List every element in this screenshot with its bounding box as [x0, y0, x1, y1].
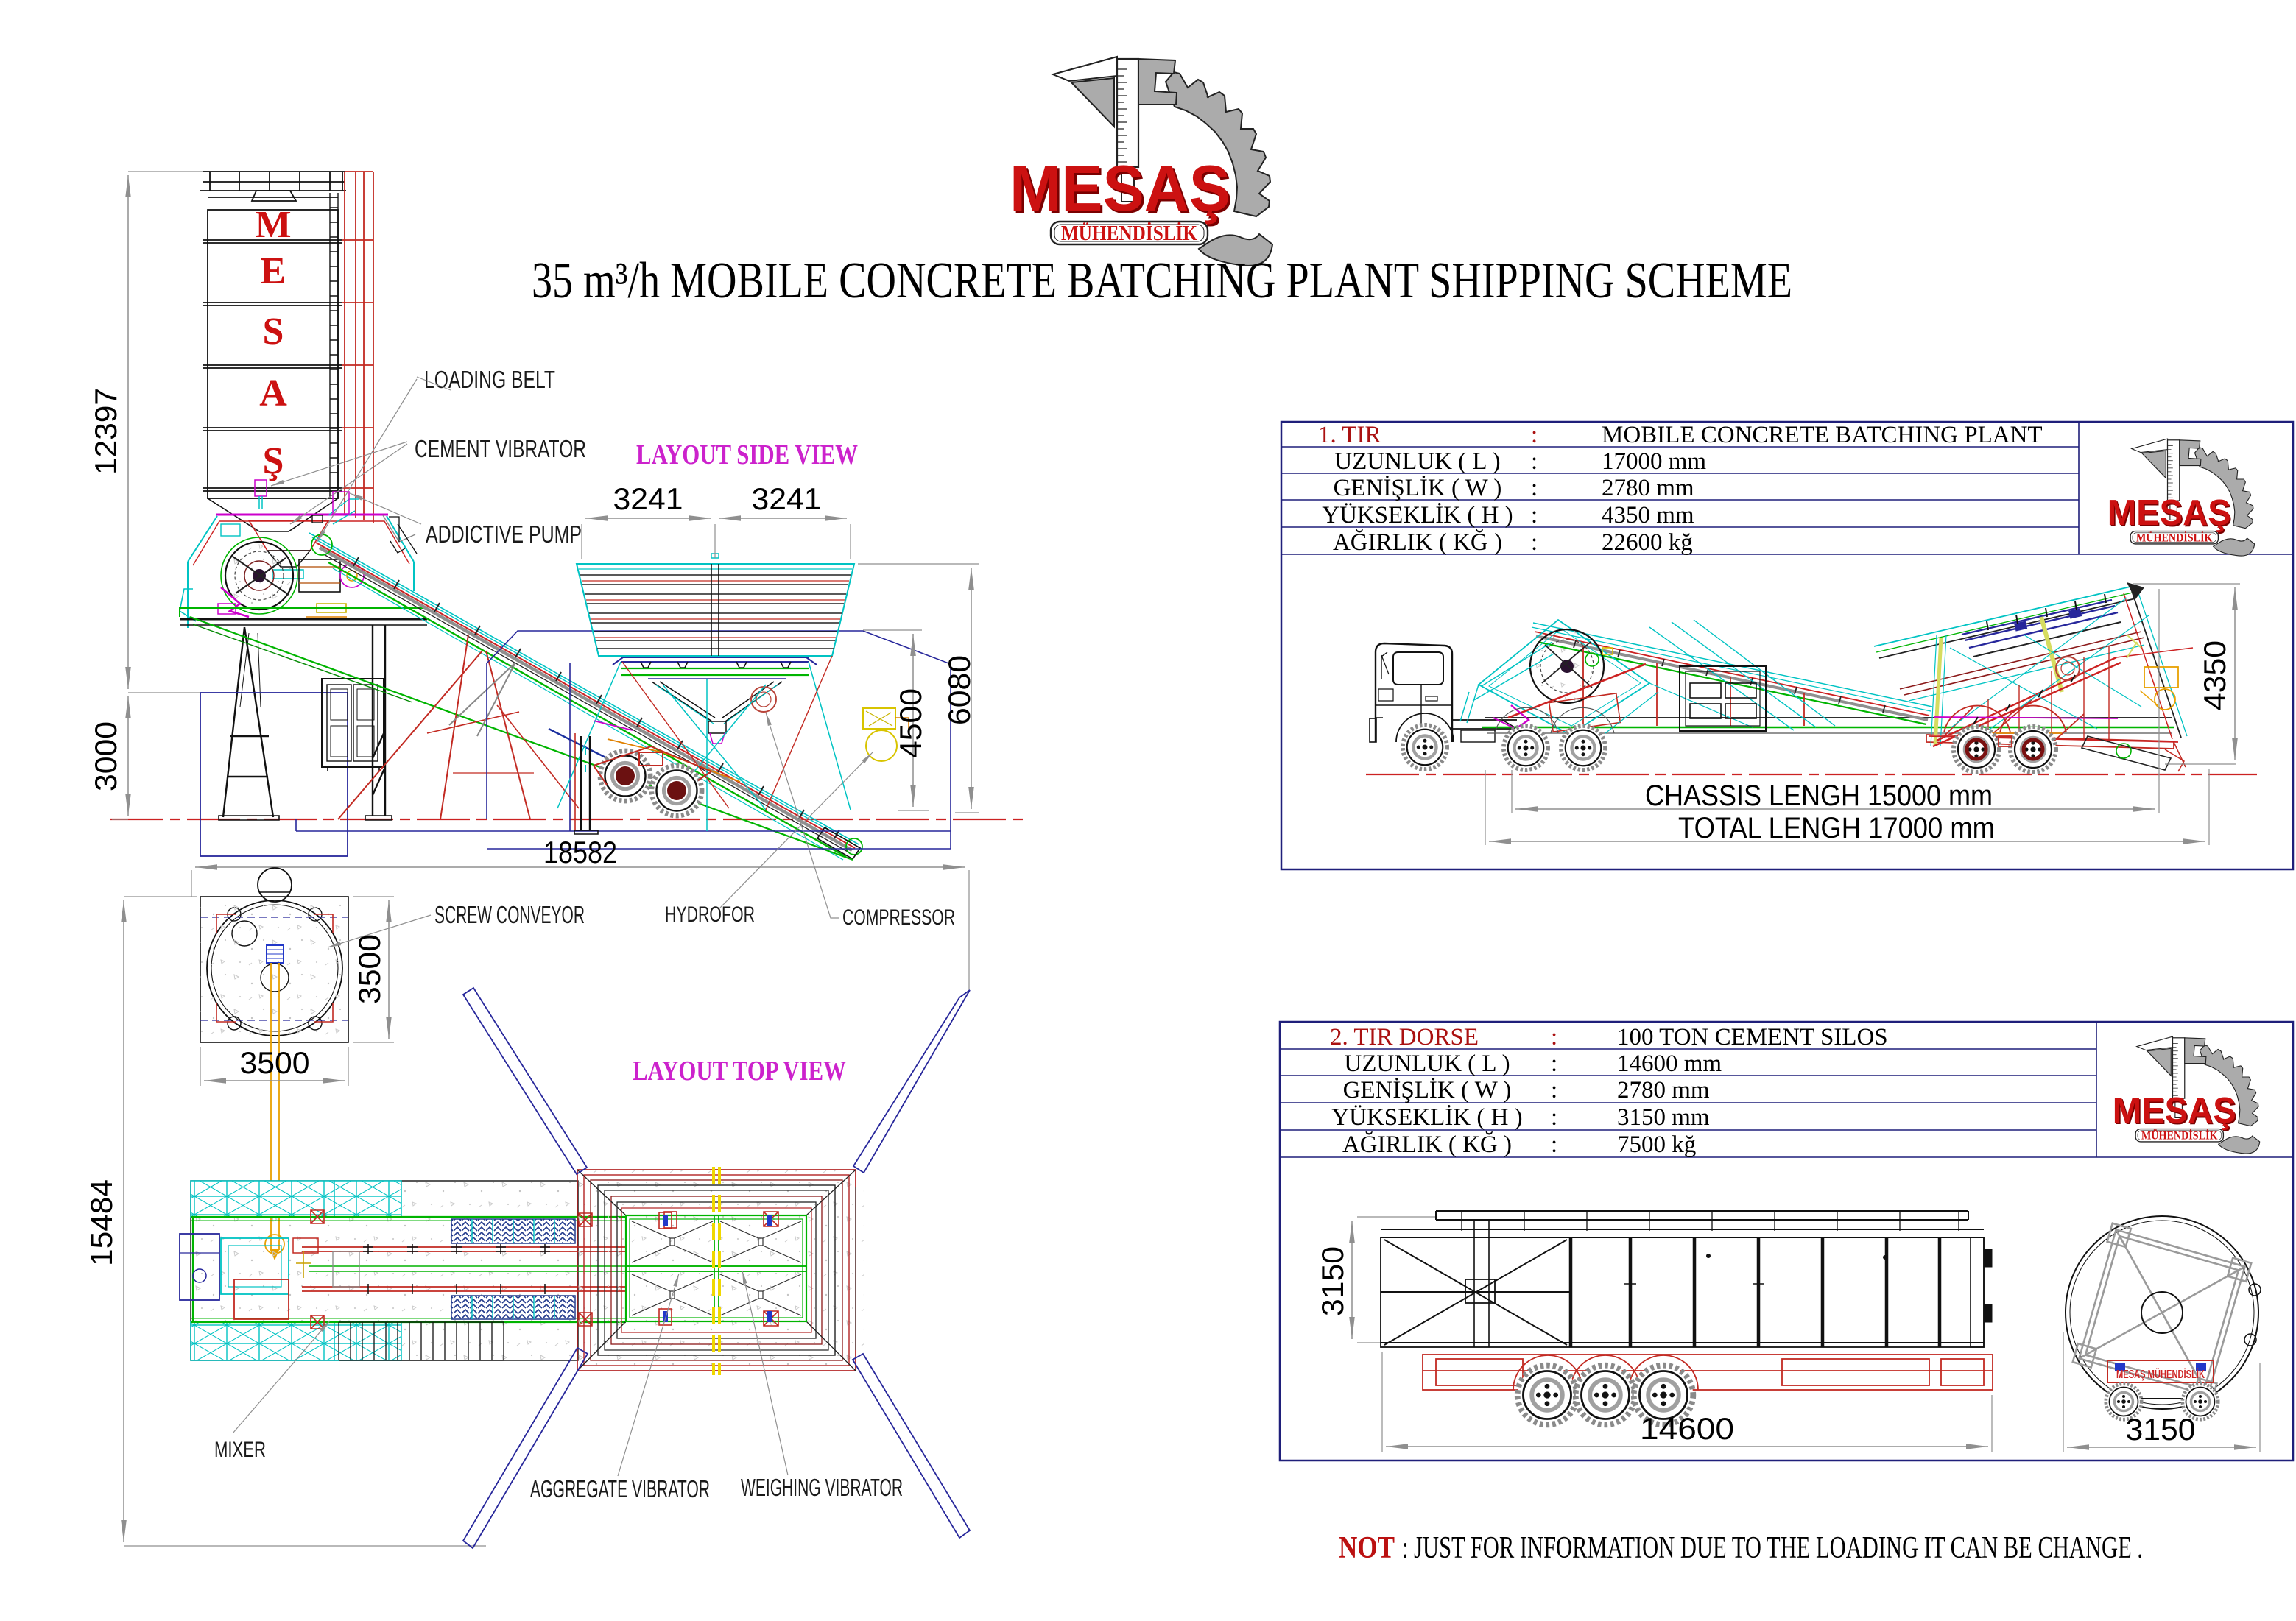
- svg-text:MIXER: MIXER: [214, 1438, 266, 1462]
- svg-text::: :: [1551, 1050, 1557, 1077]
- svg-text:UZUNLUK ( L ): UZUNLUK ( L ): [1344, 1050, 1510, 1077]
- svg-text:YÜKSEKLİK ( H ): YÜKSEKLİK ( H ): [1331, 1104, 1522, 1131]
- svg-text:35 m³/h MOBILE CONCRETE BATCHI: 35 m³/h MOBILE CONCRETE BATCHING PLANT S…: [532, 252, 1792, 309]
- svg-text:17000 mm: 17000 mm: [1602, 448, 1706, 475]
- svg-text::: :: [1531, 448, 1538, 475]
- svg-text:YÜKSEKLİK ( H ): YÜKSEKLİK ( H ): [1322, 502, 1513, 529]
- svg-text:7500 kğ: 7500 kğ: [1617, 1131, 1696, 1158]
- svg-text:4350 mm: 4350 mm: [1602, 502, 1694, 529]
- svg-text:LAYOUT SIDE VIEW: LAYOUT SIDE VIEW: [636, 439, 858, 470]
- svg-text:3241: 3241: [752, 481, 822, 516]
- svg-text::: :: [1531, 502, 1538, 529]
- svg-text:MESAŞ MÜHENDİSLİK: MESAŞ MÜHENDİSLİK: [2116, 1367, 2205, 1381]
- svg-text:3500: 3500: [240, 1045, 310, 1080]
- svg-text:HYDROFOR: HYDROFOR: [665, 903, 755, 927]
- svg-text::: :: [1551, 1131, 1557, 1158]
- svg-text:18582: 18582: [543, 835, 617, 869]
- svg-text:AĞIRLIK ( KĞ ): AĞIRLIK ( KĞ ): [1333, 529, 1502, 556]
- svg-text:TOTAL LENGH 17000 mm: TOTAL LENGH 17000 mm: [1678, 812, 1995, 844]
- svg-text:SCREW CONVEYOR: SCREW CONVEYOR: [434, 901, 585, 928]
- svg-text:COMPRESSOR: COMPRESSOR: [842, 905, 955, 930]
- svg-text:22600 kğ: 22600 kğ: [1602, 529, 1693, 556]
- svg-text:UZUNLUK ( L ): UZUNLUK ( L ): [1334, 448, 1500, 475]
- svg-text:15484: 15484: [84, 1179, 119, 1266]
- svg-text:E: E: [261, 250, 286, 292]
- svg-text:2780 mm: 2780 mm: [1617, 1077, 1710, 1103]
- svg-text:2780 mm: 2780 mm: [1602, 475, 1694, 501]
- svg-text:14600 mm: 14600 mm: [1617, 1050, 1722, 1077]
- svg-text:GENİŞLİK ( W ): GENİŞLİK ( W ): [1343, 1077, 1512, 1103]
- svg-text:3150 mm: 3150 mm: [1617, 1104, 1710, 1131]
- svg-text:3241: 3241: [613, 481, 683, 516]
- svg-text:CEMENT VIBRATOR: CEMENT VIBRATOR: [415, 435, 586, 462]
- svg-text:3150: 3150: [1315, 1246, 1350, 1316]
- svg-text::: :: [1531, 529, 1538, 556]
- svg-text:S: S: [263, 311, 284, 353]
- svg-text:100 TON CEMENT SILOS: 100 TON CEMENT SILOS: [1617, 1024, 1888, 1050]
- svg-text:LOADING BELT: LOADING BELT: [424, 366, 555, 393]
- svg-text:2. TIR DORSE: 2. TIR DORSE: [1330, 1024, 1479, 1050]
- svg-text:Ş: Ş: [263, 440, 284, 482]
- svg-text:3000: 3000: [88, 721, 123, 791]
- svg-text:A: A: [259, 372, 287, 414]
- svg-text:3150: 3150: [2126, 1412, 2196, 1447]
- svg-text:AGGREGATE VIBRATOR: AGGREGATE VIBRATOR: [530, 1475, 710, 1502]
- svg-text:6080: 6080: [942, 655, 976, 725]
- svg-text:4500: 4500: [893, 688, 928, 758]
- svg-text:1. TIR: 1. TIR: [1318, 422, 1381, 448]
- svg-text::: :: [1551, 1024, 1557, 1050]
- svg-text:NOT: NOT: [1339, 1531, 1395, 1565]
- svg-text:4350: 4350: [2197, 640, 2232, 710]
- svg-text:AĞIRLIK ( KĞ ): AĞIRLIK ( KĞ ): [1342, 1131, 1512, 1158]
- svg-text:ADDICTIVE PUMP: ADDICTIVE PUMP: [426, 520, 582, 548]
- svg-text:CHASSIS LENGH 15000 mm: CHASSIS LENGH 15000 mm: [1645, 780, 1993, 812]
- svg-text::: :: [1551, 1077, 1557, 1103]
- svg-text::: :: [1531, 475, 1538, 501]
- svg-text:12397: 12397: [88, 388, 123, 475]
- svg-text:3500: 3500: [352, 934, 387, 1004]
- svg-text:LAYOUT TOP VIEW: LAYOUT TOP VIEW: [633, 1056, 846, 1087]
- svg-text::: :: [1531, 422, 1538, 448]
- svg-text:WEIGHING VIBRATOR: WEIGHING VIBRATOR: [741, 1474, 903, 1501]
- svg-text:: JUST FOR INFORMATION DUE TO: : JUST FOR INFORMATION DUE TO THE LOADIN…: [1402, 1531, 2143, 1565]
- svg-text:GENİŞLİK ( W ): GENİŞLİK ( W ): [1334, 475, 1502, 501]
- svg-text::: :: [1551, 1104, 1557, 1131]
- svg-text:14600: 14600: [1640, 1411, 1734, 1446]
- svg-text:M: M: [255, 204, 291, 246]
- svg-text:MOBILE CONCRETE BATCHING PLANT: MOBILE CONCRETE BATCHING PLANT: [1602, 422, 2043, 448]
